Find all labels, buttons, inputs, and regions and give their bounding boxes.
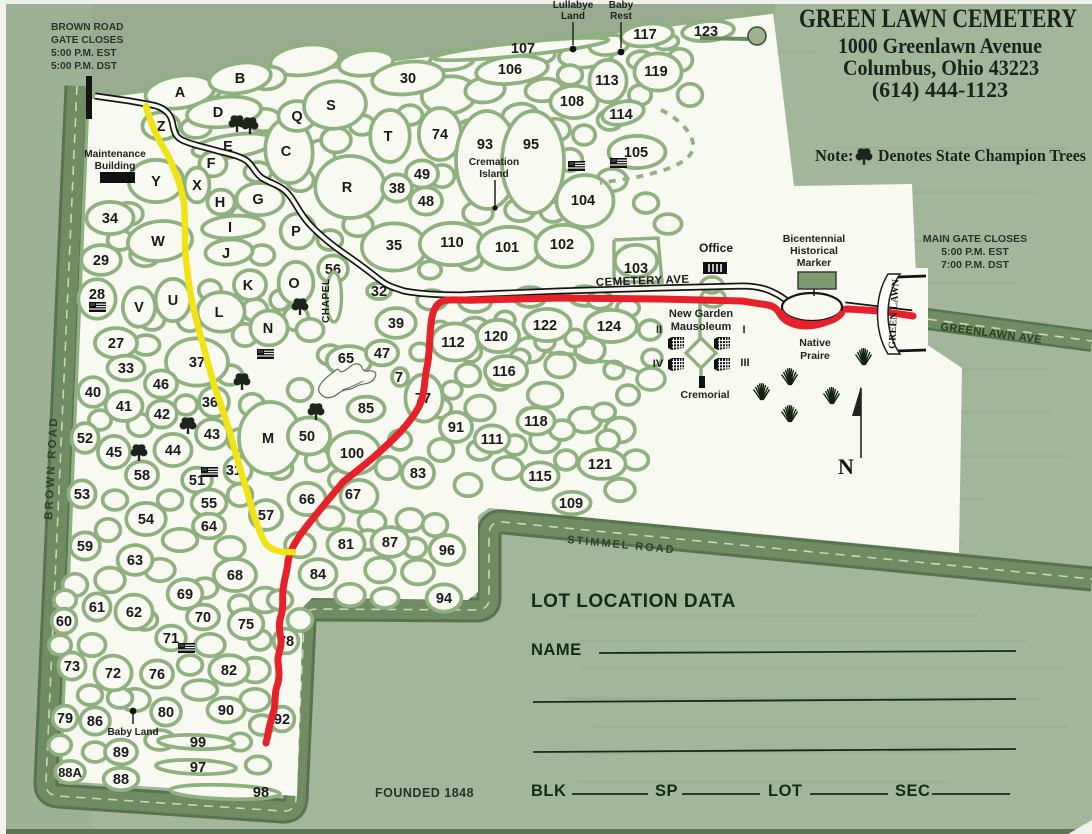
svg-text:N: N <box>838 454 854 479</box>
svg-text:46: 46 <box>153 377 169 393</box>
svg-text:J: J <box>222 246 230 262</box>
svg-text:118: 118 <box>524 414 547 430</box>
svg-text:89: 89 <box>113 745 129 761</box>
svg-text:70: 70 <box>195 610 211 626</box>
svg-text:T: T <box>384 129 393 145</box>
svg-text:106: 106 <box>498 62 522 78</box>
svg-text:49: 49 <box>414 167 430 183</box>
svg-text:O: O <box>288 276 299 292</box>
svg-text:Marker: Marker <box>797 257 831 269</box>
svg-text:Land: Land <box>561 11 585 22</box>
svg-text:Cremorial: Cremorial <box>680 389 729 401</box>
svg-text:D: D <box>213 105 223 121</box>
svg-text:75: 75 <box>238 617 254 633</box>
svg-text:58: 58 <box>134 468 150 484</box>
svg-text:100: 100 <box>340 446 364 462</box>
svg-text:53: 53 <box>74 487 90 503</box>
svg-text:30: 30 <box>400 71 416 87</box>
svg-text:7: 7 <box>395 370 403 386</box>
svg-text:119: 119 <box>644 64 667 80</box>
svg-text:73: 73 <box>64 659 80 675</box>
svg-text:109: 109 <box>559 496 583 512</box>
svg-text:34: 34 <box>102 211 118 227</box>
svg-text:39: 39 <box>388 316 404 332</box>
svg-text:105: 105 <box>624 145 648 161</box>
svg-text:88A: 88A <box>58 765 82 780</box>
svg-text:88: 88 <box>113 772 129 788</box>
svg-text:Y: Y <box>151 174 161 190</box>
svg-text:122: 122 <box>533 318 557 334</box>
svg-text:93: 93 <box>477 137 493 153</box>
svg-text:121: 121 <box>588 457 612 473</box>
svg-text:107: 107 <box>511 41 535 57</box>
svg-text:67: 67 <box>345 487 361 503</box>
svg-text:27: 27 <box>108 336 124 352</box>
svg-text:98: 98 <box>253 785 269 801</box>
svg-text:Baby Land: Baby Land <box>107 727 158 738</box>
svg-text:Historical: Historical <box>790 245 838 257</box>
svg-text:Praire: Praire <box>800 350 830 362</box>
svg-text:5:00 P.M. EST: 5:00 P.M. EST <box>941 246 1009 258</box>
svg-text:44: 44 <box>165 443 181 459</box>
svg-text:42: 42 <box>154 407 170 423</box>
svg-text:112: 112 <box>441 335 464 351</box>
svg-text:BLK: BLK <box>531 782 566 800</box>
svg-text:U: U <box>168 293 178 309</box>
svg-text:83: 83 <box>410 466 426 482</box>
svg-text:59: 59 <box>77 539 93 555</box>
svg-text:97: 97 <box>190 760 206 776</box>
svg-text:5:00 P.M. EST: 5:00 P.M. EST <box>51 48 117 59</box>
svg-text:90: 90 <box>218 703 234 719</box>
svg-text:Office: Office <box>699 241 733 255</box>
svg-text:124: 124 <box>597 319 621 335</box>
svg-text:K: K <box>243 278 254 294</box>
svg-text:Native: Native <box>799 337 831 349</box>
svg-text:57: 57 <box>258 508 274 524</box>
svg-text:62: 62 <box>126 605 142 621</box>
svg-text:110: 110 <box>440 235 463 251</box>
svg-text:95: 95 <box>523 137 539 153</box>
svg-text:84: 84 <box>310 567 326 583</box>
svg-text:GATE CLOSES: GATE CLOSES <box>51 35 123 46</box>
svg-text:F: F <box>207 156 216 172</box>
svg-text:116: 116 <box>492 364 515 380</box>
svg-text:BROWN ROAD: BROWN ROAD <box>51 22 123 33</box>
svg-text:IV: IV <box>653 358 664 370</box>
svg-text:99: 99 <box>190 735 206 751</box>
svg-text:LOT: LOT <box>768 782 803 800</box>
svg-text:28: 28 <box>89 287 105 303</box>
svg-text:52: 52 <box>77 431 93 447</box>
svg-text:GREEN LAWN CEMETERY: GREEN LAWN CEMETERY <box>799 4 1077 33</box>
svg-text:43: 43 <box>204 427 220 443</box>
svg-text:64: 64 <box>201 519 217 535</box>
svg-text:69: 69 <box>177 587 193 603</box>
svg-text:91: 91 <box>448 420 464 436</box>
svg-text:Island: Island <box>479 169 508 180</box>
svg-text:45: 45 <box>106 445 122 461</box>
svg-text:63: 63 <box>127 553 143 569</box>
svg-text:72: 72 <box>105 666 121 682</box>
svg-text:Maintenance: Maintenance <box>84 149 146 160</box>
svg-text:N: N <box>263 321 273 337</box>
svg-text:I: I <box>742 324 745 336</box>
svg-text:SP: SP <box>655 782 678 800</box>
svg-text:117: 117 <box>633 27 656 43</box>
svg-text:33: 33 <box>118 361 134 377</box>
svg-text:115: 115 <box>528 469 551 485</box>
svg-text:Lullabye: Lullabye <box>553 0 594 11</box>
svg-text:113: 113 <box>595 73 618 89</box>
svg-text:96: 96 <box>439 543 455 559</box>
svg-text:New Garden: New Garden <box>669 308 733 320</box>
svg-text:X: X <box>192 178 202 194</box>
svg-text:Q: Q <box>291 109 302 125</box>
svg-text:29: 29 <box>93 253 109 269</box>
svg-text:W: W <box>151 234 165 250</box>
svg-text:55: 55 <box>201 496 217 512</box>
svg-text:Baby: Baby <box>609 0 634 11</box>
svg-text:7:00 P.M. DST: 7:00 P.M. DST <box>941 259 1010 271</box>
svg-text:61: 61 <box>89 600 105 616</box>
svg-text:111: 111 <box>481 432 504 448</box>
svg-text:38: 38 <box>389 181 405 197</box>
svg-text:68: 68 <box>227 568 243 584</box>
svg-text:50: 50 <box>299 429 315 445</box>
svg-text:A: A <box>175 85 186 101</box>
svg-text:B: B <box>235 71 245 87</box>
svg-text:Building: Building <box>95 161 136 172</box>
svg-text:79: 79 <box>57 711 73 727</box>
svg-text:NAME: NAME <box>531 641 582 659</box>
svg-text:Note:: Note: <box>815 146 853 165</box>
svg-text:(614) 444-1123: (614) 444-1123 <box>872 77 1008 102</box>
svg-text:108: 108 <box>560 94 584 110</box>
svg-text:60: 60 <box>56 614 72 630</box>
svg-text:54: 54 <box>138 512 154 528</box>
svg-text:120: 120 <box>484 329 508 345</box>
svg-text:35: 35 <box>386 238 402 254</box>
svg-text:5:00 P.M. DST: 5:00 P.M. DST <box>51 61 118 72</box>
svg-text:81: 81 <box>338 537 354 553</box>
svg-text:FOUNDED 1848: FOUNDED 1848 <box>375 786 474 800</box>
svg-text:Rest: Rest <box>610 11 632 22</box>
svg-text:101: 101 <box>495 240 519 256</box>
svg-text:86: 86 <box>87 714 103 730</box>
svg-text:LOT LOCATION DATA: LOT LOCATION DATA <box>531 591 736 612</box>
svg-text:71: 71 <box>163 631 179 647</box>
svg-text:H: H <box>215 195 225 211</box>
svg-text:48: 48 <box>418 194 434 210</box>
svg-text:76: 76 <box>149 667 165 683</box>
svg-text:87: 87 <box>382 535 398 551</box>
svg-text:M: M <box>262 431 274 447</box>
svg-text:Denotes State Champion Trees: Denotes State Champion Trees <box>878 146 1087 165</box>
svg-text:P: P <box>291 224 301 240</box>
svg-text:R: R <box>342 180 353 196</box>
svg-text:II: II <box>656 324 662 336</box>
svg-text:80: 80 <box>158 705 174 721</box>
svg-text:37: 37 <box>189 355 205 371</box>
svg-text:G: G <box>252 192 263 208</box>
svg-text:41: 41 <box>116 399 132 415</box>
svg-text:47: 47 <box>374 346 390 362</box>
svg-text:82: 82 <box>221 663 237 679</box>
svg-text:I: I <box>228 220 232 236</box>
svg-text:C: C <box>281 144 292 160</box>
svg-text:102: 102 <box>550 237 574 253</box>
svg-text:V: V <box>134 300 144 316</box>
svg-text:S: S <box>326 98 336 114</box>
svg-text:L: L <box>215 305 224 321</box>
svg-text:104: 104 <box>571 193 595 209</box>
svg-text:94: 94 <box>436 591 452 607</box>
svg-text:MAIN GATE CLOSES: MAIN GATE CLOSES <box>923 233 1027 245</box>
svg-text:Cremation: Cremation <box>469 157 519 168</box>
svg-text:40: 40 <box>85 385 101 401</box>
svg-text:Bicentennial: Bicentennial <box>783 233 846 245</box>
svg-text:III: III <box>740 357 749 369</box>
svg-text:CHAPEL: CHAPEL <box>321 278 332 323</box>
svg-text:Mausoleum: Mausoleum <box>671 321 732 333</box>
svg-text:65: 65 <box>338 351 354 367</box>
svg-text:74: 74 <box>432 127 448 143</box>
svg-text:66: 66 <box>299 492 315 508</box>
svg-text:114: 114 <box>609 107 632 123</box>
svg-text:SEC: SEC <box>895 782 930 800</box>
svg-text:85: 85 <box>358 401 374 417</box>
